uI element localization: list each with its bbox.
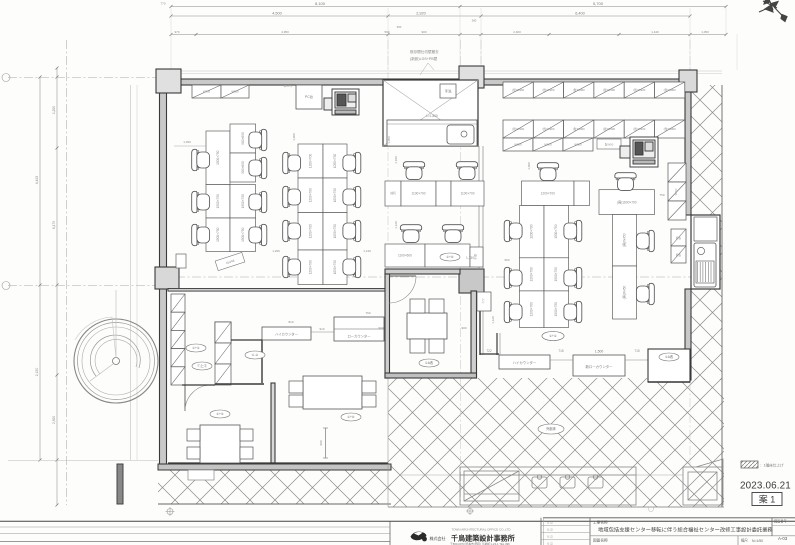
svg-text:1500×750: 1500×750 [216, 194, 220, 208]
svg-text:袖机: 袖机 [390, 191, 396, 195]
svg-text:770: 770 [160, 2, 165, 6]
svg-text:1500×750: 1500×750 [216, 227, 220, 241]
svg-text:1,440: 1,440 [651, 30, 659, 34]
svg-text:①上②: ①上② [197, 363, 207, 368]
svg-text:(廃)W450: (廃)W450 [622, 233, 627, 247]
svg-text:970: 970 [174, 30, 179, 34]
svg-text:(既)W900: (既)W900 [603, 127, 615, 131]
svg-text:4,415: 4,415 [35, 176, 39, 185]
svg-text:(既)W900: (既)W900 [573, 127, 585, 131]
svg-text:図面番号: 図面番号 [774, 519, 787, 524]
svg-text:(既)W900: (既)W900 [512, 88, 524, 92]
svg-text:1,050: 1,050 [387, 136, 391, 144]
svg-text:2,400: 2,400 [513, 30, 521, 34]
svg-text:図面名称: 図面名称 [593, 538, 608, 543]
svg-text:棚板: 棚板 [676, 253, 682, 257]
svg-text:1200×700: 1200×700 [309, 224, 313, 238]
svg-text:1,050: 1,050 [701, 30, 709, 34]
svg-text:(EXP.J): (EXP.J) [284, 84, 293, 88]
svg-text:(新設)LGS+PB壁: (新設)LGS+PB壁 [410, 56, 438, 61]
svg-text:350: 350 [397, 25, 402, 29]
svg-text:①A改: ①A改 [425, 360, 434, 365]
svg-text:6,175: 6,175 [52, 221, 56, 229]
svg-text:工事名称: 工事名称 [593, 520, 608, 525]
svg-text:900×650: 900×650 [241, 132, 245, 145]
svg-text:2,150: 2,150 [35, 368, 39, 377]
svg-text:：1階床仕上げ: ：1階床仕上げ [760, 463, 784, 468]
svg-text:①+②: ①+② [192, 346, 200, 350]
svg-text:N=1/50: N=1/50 [752, 539, 763, 543]
svg-text:1500×750: 1500×750 [554, 302, 558, 316]
svg-text:株式会社: 株式会社 [430, 535, 446, 541]
svg-text:900: 900 [461, 326, 466, 330]
svg-text:外部床: 外部床 [546, 426, 556, 431]
svg-text:1200×700: 1200×700 [530, 302, 534, 316]
svg-text:1200×700: 1200×700 [530, 267, 534, 281]
svg-text:①A改: ①A改 [665, 354, 674, 359]
svg-text:案 1: 案 1 [759, 494, 776, 505]
svg-text:1500×750: 1500×750 [216, 150, 220, 164]
svg-text:縮尺: 縮尺 [741, 538, 748, 543]
svg-text:715: 715 [558, 349, 564, 353]
svg-text:①+⑥: ①+⑥ [347, 415, 355, 419]
svg-text:年 月: 年 月 [547, 542, 553, 545]
svg-text:既W90: 既W90 [605, 143, 614, 147]
svg-text:760: 760 [365, 311, 370, 315]
svg-text:5,700: 5,700 [593, 1, 604, 6]
svg-text:(既)W900: (既)W900 [542, 88, 554, 92]
svg-text:L=1,800: L=1,800 [426, 114, 438, 118]
svg-text:910: 910 [319, 327, 324, 331]
svg-text:手洗: 手洗 [445, 89, 452, 94]
svg-text:722: 722 [486, 349, 492, 353]
svg-text:1200×700: 1200×700 [541, 191, 555, 195]
svg-text:1050×750: 1050×750 [333, 260, 337, 274]
svg-text:ハイカウンター: ハイカウンター [275, 332, 298, 337]
svg-text:900: 900 [421, 30, 426, 34]
svg-text:1,000: 1,000 [292, 133, 296, 141]
svg-text:(廃)W450: (廃)W450 [622, 285, 627, 299]
svg-text:①+⑤: ①+⑤ [216, 412, 224, 416]
svg-text:W450: W450 [674, 188, 678, 195]
svg-text:(既)W900: (既)W900 [633, 127, 645, 131]
svg-text:810: 810 [288, 320, 293, 324]
svg-text:(既)W900: (既)W900 [603, 88, 615, 92]
svg-text:①-②: ①-② [252, 353, 259, 357]
svg-text:棚板: 棚板 [676, 236, 682, 240]
svg-text:750: 750 [659, 193, 664, 197]
svg-text:900: 900 [319, 440, 323, 445]
svg-text:(廃)1600×700: (廃)1600×700 [617, 199, 637, 204]
svg-text:1,200: 1,200 [52, 106, 56, 114]
svg-text:ハイカウンター: ハイカウンター [513, 360, 537, 365]
svg-text:6,400: 6,400 [575, 12, 585, 16]
svg-text:1200×700: 1200×700 [309, 260, 313, 274]
svg-text:1050×750: 1050×750 [333, 188, 337, 202]
svg-text:W900: W900 [574, 143, 582, 147]
svg-text:1,120: 1,120 [394, 221, 398, 229]
svg-text:1,500: 1,500 [595, 350, 604, 354]
svg-text:900: 900 [504, 258, 509, 262]
svg-text:1050×750: 1050×750 [333, 154, 337, 168]
svg-text:900×650: 900×650 [241, 161, 245, 174]
svg-text:1,000: 1,000 [527, 162, 531, 170]
svg-text:A-03: A-03 [778, 536, 788, 541]
svg-text:1100×700: 1100×700 [460, 192, 474, 196]
svg-text:(既)W900: (既)W900 [664, 127, 676, 131]
svg-text:380: 380 [472, 19, 477, 23]
svg-text:715: 715 [634, 349, 640, 353]
svg-text:TOWN ARCHITECTURAL OFFICE CO.,: TOWN ARCHITECTURAL OFFICE CO.,LTD [451, 528, 511, 532]
svg-text:1,130: 1,130 [363, 249, 371, 253]
svg-text:新ローカウンター: 新ローカウンター [585, 364, 613, 369]
svg-text:1500×750: 1500×750 [554, 224, 558, 238]
svg-text:2023.06.21: 2023.06.21 [740, 481, 791, 492]
svg-text:1,180: 1,180 [394, 156, 398, 164]
svg-text:W900: W900 [514, 143, 522, 147]
svg-text:ローカウンター: ローカウンター [347, 334, 370, 339]
svg-text:4,500: 4,500 [272, 12, 282, 16]
svg-text:年 月: 年 月 [547, 535, 553, 539]
svg-text:8,100: 8,100 [315, 1, 326, 6]
svg-text:W900: W900 [231, 90, 239, 94]
svg-text:1100×700: 1100×700 [411, 192, 425, 196]
svg-text:年 月: 年 月 [547, 521, 553, 525]
svg-text:1,130: 1,130 [466, 256, 474, 260]
svg-text:1200×700: 1200×700 [309, 188, 313, 202]
svg-text:(既)W900: (既)W900 [542, 127, 554, 131]
svg-text:ホワ: ホワ [481, 298, 485, 304]
svg-text:既存間仕切壁撤去: 既存間仕切壁撤去 [410, 49, 439, 54]
svg-text:1500×750: 1500×750 [554, 267, 558, 281]
svg-text:2,300: 2,300 [52, 416, 56, 424]
svg-text:①+②: ①+② [549, 334, 557, 338]
svg-text:年 月: 年 月 [547, 528, 553, 532]
svg-text:2,920: 2,920 [416, 12, 426, 16]
svg-text:1050×750: 1050×750 [333, 224, 337, 238]
svg-text:(既)W900: (既)W900 [512, 127, 524, 131]
svg-text:1200×700: 1200×700 [530, 224, 534, 238]
svg-text:4,950: 4,950 [281, 30, 289, 34]
svg-text:1200×700: 1200×700 [309, 154, 313, 168]
svg-text:1,120: 1,120 [491, 316, 495, 324]
svg-text:1100×600: 1100×600 [398, 254, 412, 258]
svg-text:PC台: PC台 [305, 94, 314, 99]
svg-text:1500×750: 1500×750 [241, 194, 245, 208]
svg-text:(既)W900: (既)W900 [573, 88, 585, 92]
svg-text:地域包括支援センター移転に伴う総合福祉センター改修工事設計委: 地域包括支援センター移転に伴う総合福祉センター改修工事設計委託業務 [598, 526, 774, 534]
svg-text:590: 590 [384, 30, 389, 34]
svg-text:W900: W900 [544, 143, 552, 147]
svg-text:(既)W900: (既)W900 [664, 88, 676, 92]
svg-text:1,290: 1,290 [272, 249, 280, 253]
svg-text:1500×750: 1500×750 [241, 227, 245, 241]
svg-text:1,390: 1,390 [183, 140, 191, 144]
svg-text:900: 900 [378, 326, 383, 330]
svg-text:(既)W900: (既)W900 [633, 88, 645, 92]
svg-text:平棚: 平棚 [474, 254, 478, 260]
svg-text:W750: W750 [203, 90, 211, 94]
svg-text:①+⑧: ①+⑧ [446, 255, 454, 259]
